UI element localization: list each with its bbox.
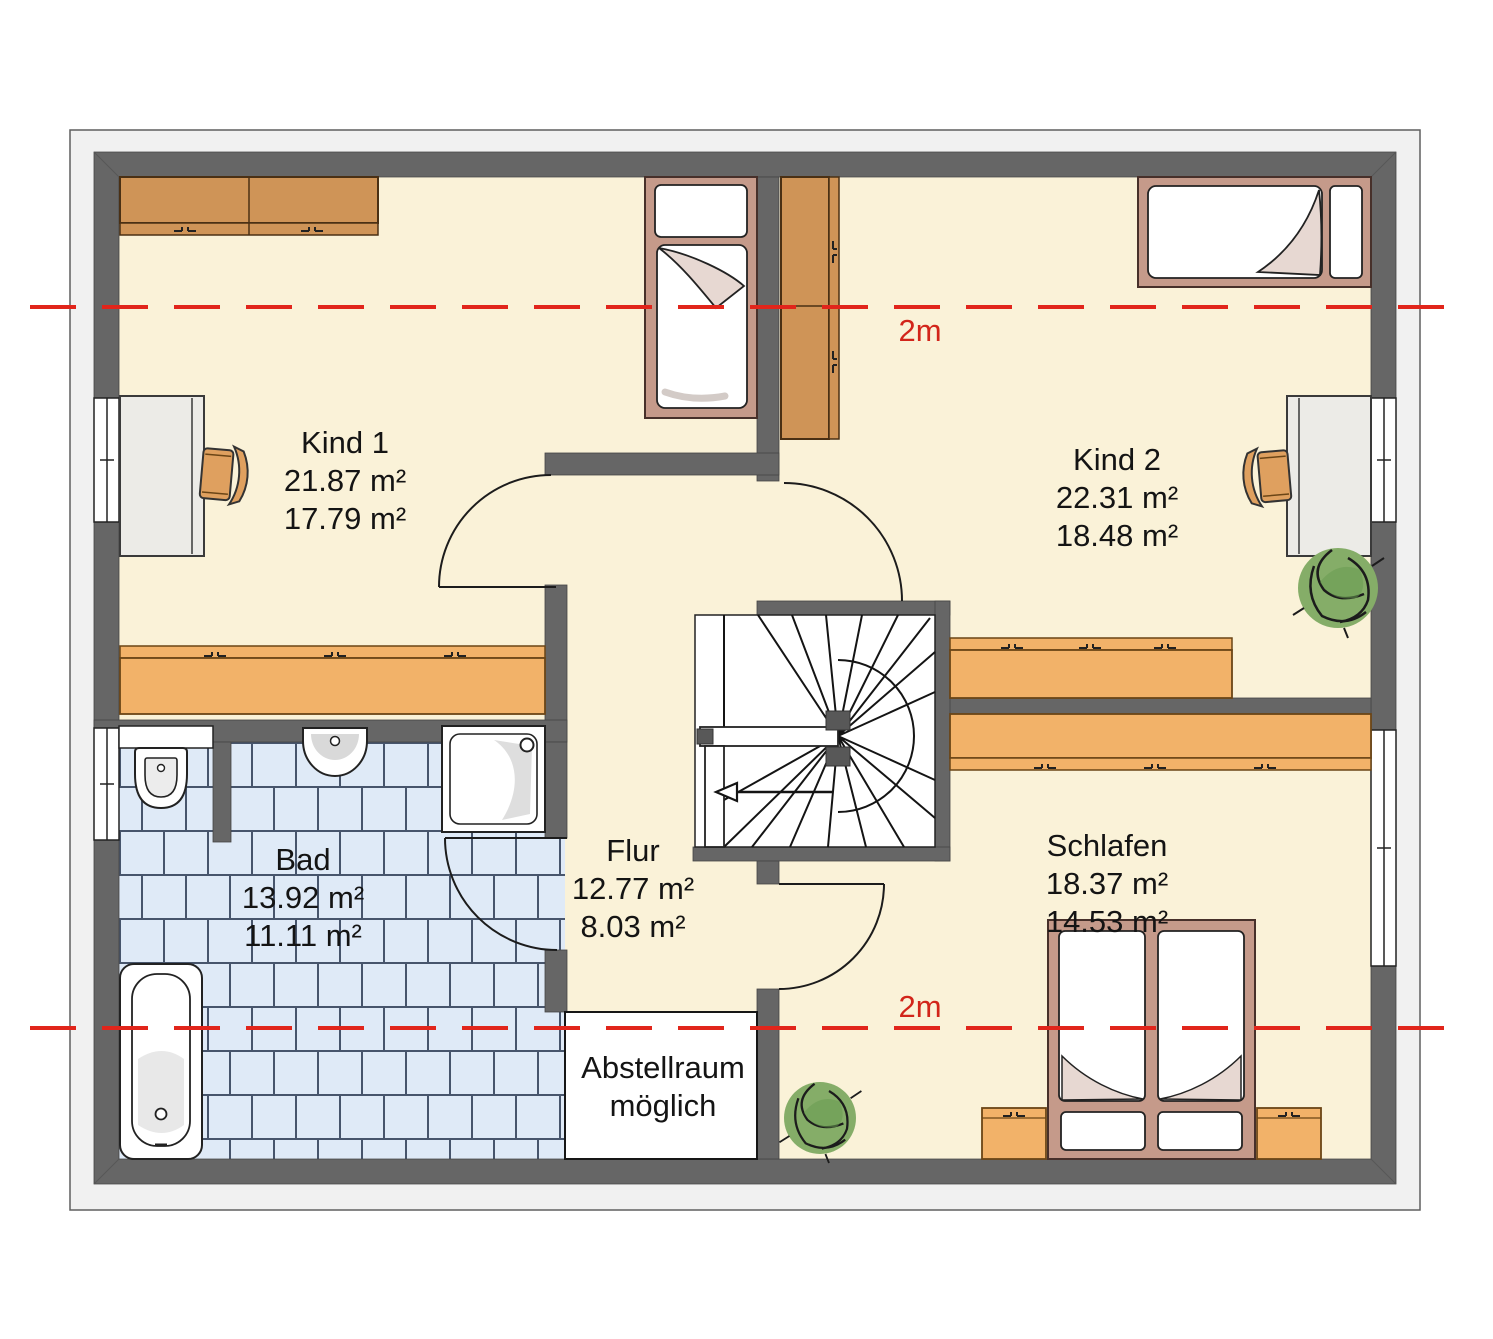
headroom-label-top: 2m (898, 312, 941, 350)
room-name: Kind 1 (284, 424, 406, 462)
wall-bad-flur-upper (545, 742, 567, 838)
room-label-kind2: Kind 2 22.31 m² 18.48 m² (1056, 441, 1178, 555)
room-area-net: 14.53 m² (1046, 903, 1168, 941)
room-area-net: 8.03 m² (572, 908, 694, 946)
room-area-gross: 12.77 m² (572, 870, 694, 908)
headroom-label-bottom: 2m (898, 988, 941, 1026)
wall-kind2-schlafen (935, 698, 1371, 715)
chair-kind1 (199, 444, 250, 506)
room-area-net: 11.11 m² (242, 917, 364, 955)
closet-kind1 (120, 177, 378, 235)
bed-double (1048, 920, 1255, 1159)
room-name: Kind 2 (1056, 441, 1178, 479)
wall-kind1-flur (545, 585, 567, 742)
staircase (695, 615, 935, 847)
wall-flur-schlafen-upper (757, 861, 779, 884)
room-name: Flur (572, 832, 694, 870)
storage-label: Abstellraum möglich (581, 1049, 745, 1125)
room-name: Schlafen (1046, 827, 1168, 865)
room-area-gross: 18.37 m² (1046, 865, 1168, 903)
pillow (1330, 186, 1362, 278)
wall-stair-right (935, 601, 950, 861)
sideboard-schlafen (950, 714, 1371, 770)
bed-kind1 (645, 177, 757, 418)
room-area-net: 18.48 m² (1056, 517, 1178, 555)
wall-flur-top (545, 453, 779, 475)
sideboard-kind2 (950, 638, 1232, 698)
wall-flur-schlafen-lower (757, 989, 779, 1159)
floor-plan: Kind 1 21.87 m² 17.79 m² Kind 2 22.31 m²… (0, 0, 1493, 1339)
desk-kind1 (120, 396, 204, 556)
wall-kind1-kind2 (757, 177, 779, 481)
chair-kind2 (1241, 446, 1292, 508)
window-kind1 (94, 398, 119, 522)
room-label-schlafen: Schlafen 18.37 m² 14.53 m² (1046, 827, 1168, 941)
wall-bad-flur-lower (545, 950, 567, 1012)
room-label-flur: Flur 12.77 m² 8.03 m² (572, 832, 694, 946)
bed-kind2 (1138, 177, 1371, 287)
toilet-cistern-shelf (119, 726, 213, 748)
toilet (135, 748, 187, 808)
desk-kind2 (1287, 396, 1371, 556)
room-name: Bad (242, 841, 364, 879)
window-kind2 (1371, 398, 1396, 522)
room-label-kind1: Kind 1 21.87 m² 17.79 m² (284, 424, 406, 538)
shower (442, 726, 545, 832)
storage-line1: Abstellraum (581, 1049, 745, 1087)
pillow-right (1158, 1112, 1242, 1150)
sideboard-kind1 (120, 646, 545, 714)
wall-stair-top (757, 601, 950, 615)
room-area-net: 17.79 m² (284, 500, 406, 538)
pillow-left (1061, 1112, 1145, 1150)
room-area-gross: 22.31 m² (1056, 479, 1178, 517)
storage-line2: möglich (581, 1087, 745, 1125)
window-bad (94, 728, 119, 840)
window-schlafen (1371, 730, 1396, 966)
nightstand-right (1257, 1108, 1321, 1159)
room-label-bad: Bad 13.92 m² 11.11 m² (242, 841, 364, 955)
room-area-gross: 21.87 m² (284, 462, 406, 500)
nightstand-left (982, 1108, 1046, 1159)
pillow (655, 185, 747, 237)
wall-stair-bottom (693, 847, 950, 861)
wall-wc-partition (213, 742, 231, 842)
room-area-gross: 13.92 m² (242, 879, 364, 917)
floor-plan-drawing (0, 0, 1493, 1339)
bathtub (120, 964, 202, 1159)
